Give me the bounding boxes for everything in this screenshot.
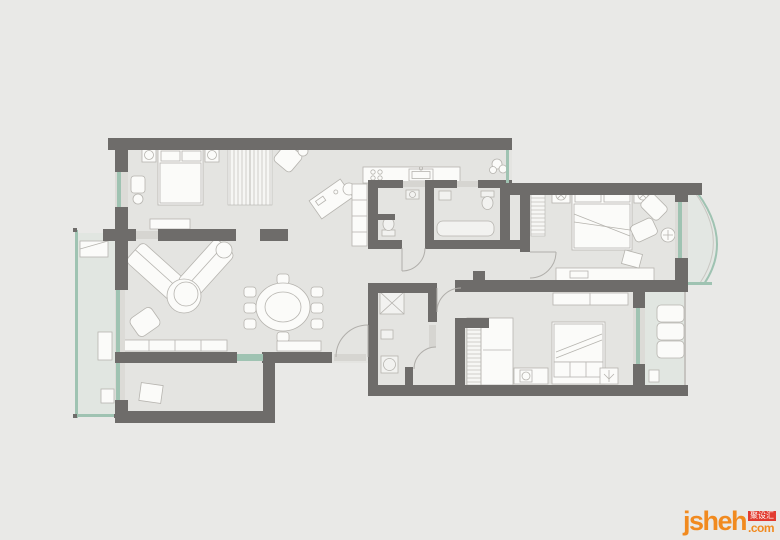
- balcony-bottom-right: [645, 292, 686, 386]
- side-table: [216, 242, 232, 258]
- tv-cabinet: [123, 340, 227, 351]
- dining-table: [256, 283, 310, 331]
- credenza: [553, 293, 628, 305]
- nightstand-right: [205, 148, 219, 162]
- floor-plan-drawing: [0, 0, 780, 540]
- sideboard: [277, 341, 321, 351]
- master-bed: [572, 188, 632, 250]
- nook-desk: [139, 383, 163, 404]
- balcony-right-curved: [688, 186, 717, 285]
- wardrobe-bedroom1: [228, 145, 272, 205]
- nightstand-left: [142, 148, 156, 162]
- door-bathroom-a-top: [403, 181, 425, 187]
- coffee-table: [167, 279, 201, 313]
- wardrobe-master: [531, 190, 545, 236]
- watermark-suffix: .com: [748, 522, 776, 534]
- nightstand-bed2-left: [514, 368, 548, 384]
- floor-plan-canvas: jsheh 聚设汇 .com: [0, 0, 780, 540]
- door-bedroom1: [136, 231, 158, 239]
- bedroom-bench: [150, 219, 190, 229]
- watermark-badge: 聚设汇: [748, 511, 776, 521]
- vanity-desk: [131, 176, 145, 204]
- site-watermark: jsheh 聚设汇 .com: [683, 508, 776, 535]
- bed-2: [552, 322, 605, 384]
- double-bed: [158, 148, 203, 205]
- door-bathroom-b: [457, 181, 478, 187]
- watermark-brand: jsheh: [683, 508, 746, 535]
- wardrobe-bedroom2: [467, 318, 513, 385]
- balcony-left: [73, 228, 118, 418]
- nightstand-bed2-right: [600, 368, 618, 384]
- kitchen-tall-units: [352, 184, 367, 246]
